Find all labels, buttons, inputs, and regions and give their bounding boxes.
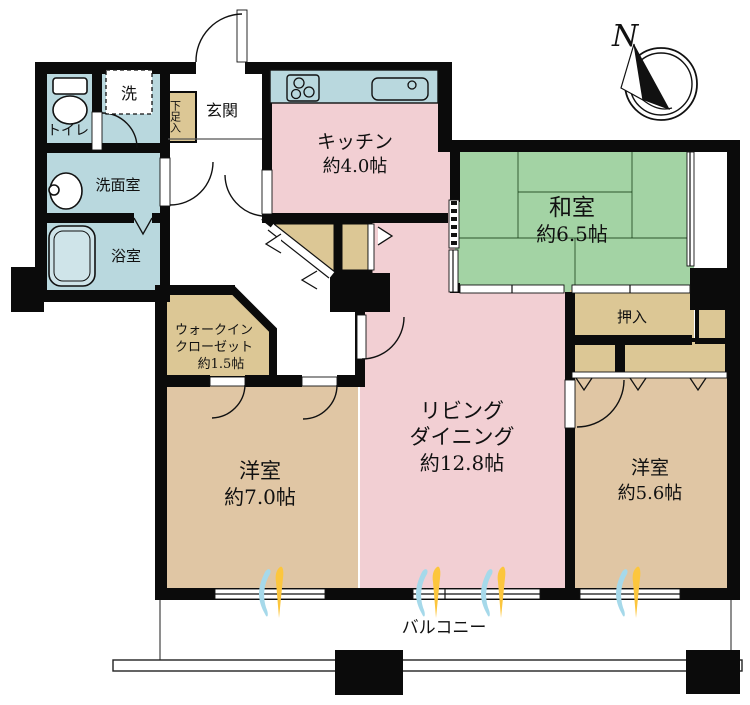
- bedroom-east-door: [565, 380, 575, 428]
- washitsu-area: 約6.5帖: [536, 222, 608, 246]
- washitsu-oshiire-sliding-door: [572, 285, 690, 293]
- fold-arrow: [302, 271, 317, 289]
- fold-arrow: [266, 234, 281, 253]
- bedroom-west-door-2: [302, 377, 337, 386]
- compass-north-label: N: [611, 19, 640, 54]
- kitchen-counter: [270, 70, 438, 103]
- shoebox-label: 下足入: [169, 100, 182, 133]
- balcony-label: バルコニー: [402, 618, 487, 638]
- bedroom-west-door-1: [210, 377, 245, 386]
- wic-area: 約1.5帖: [198, 357, 245, 372]
- kitchen-area: 約4.0帖: [323, 156, 388, 177]
- hall-closet: [340, 222, 370, 272]
- washitsu-fusuma: [449, 200, 459, 248]
- front-door-leaf: [237, 10, 247, 62]
- balcony-pillar-right: [686, 650, 740, 694]
- window-bottom-east: [580, 589, 680, 599]
- floor-plan: N 玄関 下足入 トイレ 洗 洗面室 浴室 キッチン 約4.0帖 和室 約6.5…: [0, 0, 750, 705]
- window-bottom-west: [215, 589, 325, 599]
- living-area: 約12.8帖: [420, 451, 505, 475]
- closet-east-track: [572, 372, 727, 378]
- closet-east-left: [572, 340, 617, 374]
- living-label-1: リビング: [420, 399, 504, 423]
- bedroom-east-area: 約5.6帖: [618, 483, 683, 504]
- balcony-railing: [113, 660, 742, 671]
- kitchen-label: キッチン: [317, 131, 393, 153]
- window-bottom-center: [413, 589, 540, 599]
- floor-plan-canvas: N 玄関 下足入 トイレ 洗 洗面室 浴室 キッチン 約4.0帖 和室 約6.5…: [0, 0, 750, 705]
- sink-icon: [49, 173, 82, 209]
- washitsu-label: 和室: [549, 195, 595, 221]
- toilet-door: [92, 112, 102, 150]
- toilet-icon: [53, 78, 87, 124]
- toilet-label: トイレ: [47, 123, 89, 139]
- compass: N: [611, 19, 697, 120]
- hall-closet-door: [368, 224, 374, 270]
- bedroom-west-label: 洋室: [239, 459, 281, 483]
- washroom-door: [160, 158, 170, 206]
- front-door-arc: [196, 14, 242, 62]
- laundry-label: 洗: [121, 84, 137, 103]
- genkan-label: 玄関: [206, 101, 238, 120]
- oshiire-label: 押入: [617, 308, 647, 326]
- washroom-label: 洗面室: [95, 176, 140, 194]
- balcony-pillar-center: [335, 650, 403, 695]
- kitchen-door: [262, 170, 272, 214]
- living-door: [357, 315, 366, 359]
- living-label-2: ダイニング: [410, 425, 515, 449]
- bedroom-west-area: 約7.0帖: [224, 485, 296, 509]
- bedroom-east-label: 洋室: [631, 457, 669, 479]
- bathroom-label: 浴室: [111, 247, 141, 265]
- wic-label-1: ウォークイン: [175, 323, 253, 338]
- wic-label-2: クローゼット: [175, 340, 253, 355]
